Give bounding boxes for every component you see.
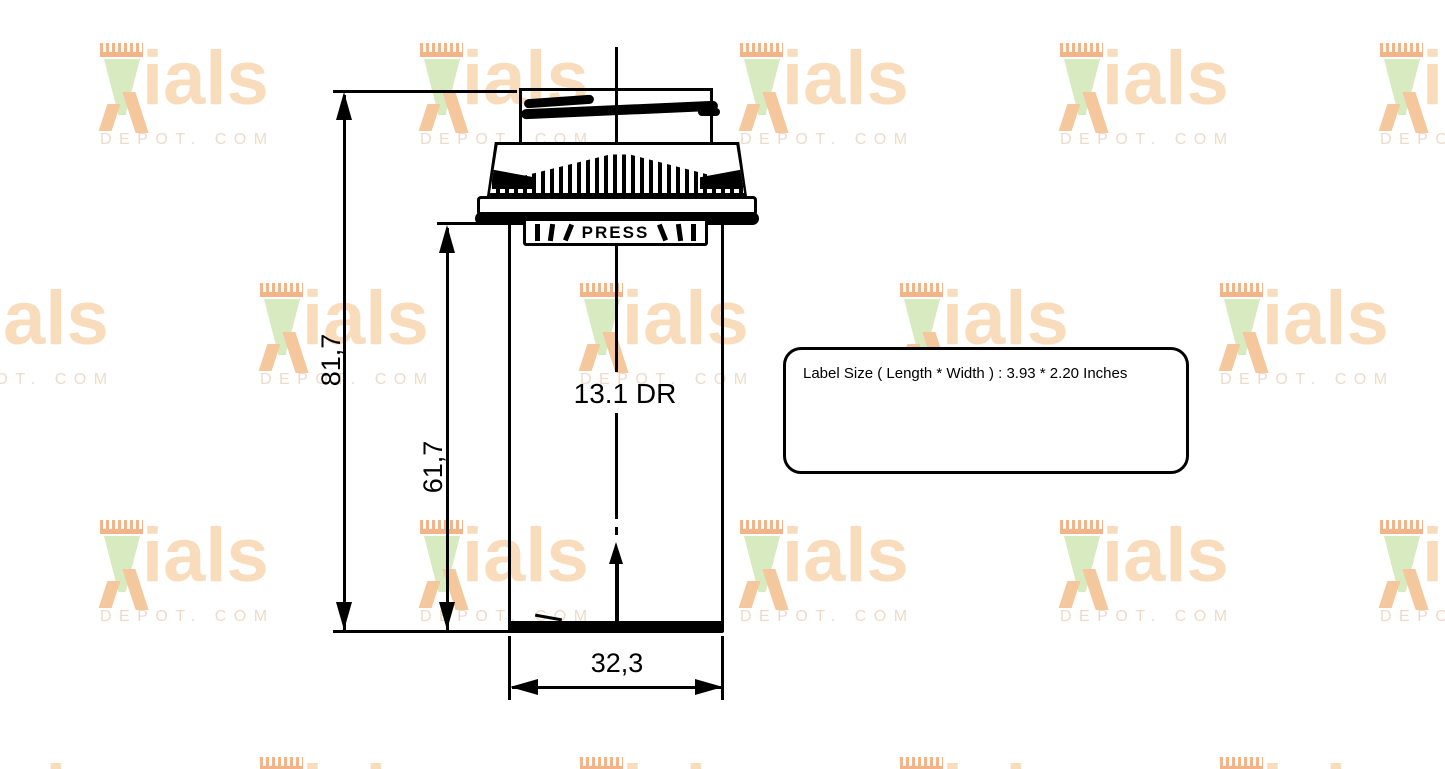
watermark-domain-text: DEPOT. COM bbox=[100, 131, 275, 149]
watermark-logo: ialsDEPOT. COM bbox=[580, 757, 770, 769]
brush-icon-base bbox=[100, 52, 143, 57]
brush-icon-base bbox=[420, 529, 463, 534]
brush-icon bbox=[580, 757, 623, 766]
watermark-brand-text: ials bbox=[782, 506, 909, 606]
brush-icon bbox=[420, 43, 463, 52]
watermark-logo: ialsDEPOT. COM bbox=[1380, 43, 1445, 155]
label-size-box: Label Size ( Length * Width ) : 3.93 * 2… bbox=[783, 347, 1189, 474]
dim-height-ext-bottom bbox=[333, 630, 509, 633]
vee-stroke-left bbox=[419, 104, 441, 131]
watermark-logo: ialsDEPOT. COM bbox=[0, 283, 130, 395]
vee-stroke-left bbox=[1059, 581, 1081, 608]
watermark-brand-text: ials bbox=[0, 743, 109, 769]
watermark-domain-text: DEPOT. COM bbox=[1380, 131, 1445, 149]
cap-top bbox=[487, 142, 747, 196]
thread-line bbox=[698, 108, 720, 116]
watermark-logo: ialsDEPOT. COM bbox=[1380, 520, 1445, 632]
watermark-logo: ialsDEPOT. COM bbox=[260, 757, 450, 769]
watermark-brand-text: ials bbox=[782, 29, 909, 129]
dim-height-arrow-bottom bbox=[336, 602, 352, 630]
watermark-domain-text: DEPOT. COM bbox=[740, 608, 915, 626]
watermark-logo: ialsDEPOT. COM bbox=[0, 757, 130, 769]
watermark-logo: ialsDEPOT. COM bbox=[100, 43, 290, 155]
watermark-logo: ialsDEPOT. COM bbox=[740, 43, 930, 155]
brush-icon bbox=[1060, 520, 1103, 529]
vee-stroke-left bbox=[739, 104, 761, 131]
brush-icon bbox=[260, 283, 303, 292]
watermark-brand-text: ials bbox=[1262, 269, 1389, 369]
watermark-logo: ialsDEPOT. COM bbox=[740, 520, 930, 632]
vee-stroke-left bbox=[1379, 581, 1401, 608]
brush-icon-base bbox=[1220, 292, 1263, 297]
watermark-logo: ialsDEPOT. COM bbox=[1060, 520, 1250, 632]
dim-height-arrow-top bbox=[336, 92, 352, 120]
vee-stroke-left bbox=[259, 344, 281, 371]
watermark-brand-text: ials bbox=[1262, 743, 1389, 769]
watermark-brand-text: ials bbox=[462, 506, 589, 606]
watermark-logo: ialsDEPOT. COM bbox=[1060, 43, 1250, 155]
watermark-domain-text: DEPOT. COM bbox=[1220, 371, 1395, 389]
brush-icon bbox=[900, 283, 943, 292]
brush-icon bbox=[100, 520, 143, 529]
vee-stroke-left bbox=[99, 104, 121, 131]
vee-stroke-left bbox=[99, 581, 121, 608]
brush-icon-base bbox=[260, 292, 303, 297]
brush-icon bbox=[1220, 283, 1263, 292]
watermark-brand-text: ials bbox=[1422, 506, 1445, 606]
vial-centerline-dash bbox=[615, 527, 618, 535]
vial-centerline-middle bbox=[615, 413, 618, 519]
dim-label-width: 32,3 bbox=[567, 648, 667, 679]
brush-icon bbox=[1060, 43, 1103, 52]
dim-width-arrow-right bbox=[695, 679, 723, 695]
hatch-mark bbox=[691, 224, 696, 241]
brush-icon bbox=[740, 43, 783, 52]
watermark-logo: ialsDEPOT. COM bbox=[900, 757, 1090, 769]
brush-icon-base bbox=[1060, 529, 1103, 534]
watermark-logo: ialsDEPOT. COM bbox=[1220, 757, 1410, 769]
watermark-brand-text: ials bbox=[622, 743, 749, 769]
watermark-domain-text: DEPOT. COM bbox=[1060, 131, 1235, 149]
brush-icon-base bbox=[1380, 52, 1423, 57]
body-right-line bbox=[721, 225, 724, 632]
hatch-mark bbox=[535, 224, 540, 241]
watermark-brand-text: ials bbox=[622, 269, 749, 369]
dim-body-arrow-bottom bbox=[439, 602, 455, 630]
diagram-canvas: ialsDEPOT. COMialsDEPOT. COMialsDEPOT. C… bbox=[0, 0, 1445, 769]
press-ring: PRESS bbox=[523, 218, 708, 246]
body-left-line bbox=[508, 225, 511, 632]
watermark-domain-text: DEPOT. COM bbox=[260, 371, 435, 389]
brush-icon bbox=[100, 43, 143, 52]
brush-icon bbox=[1380, 520, 1423, 529]
neck-right-line bbox=[710, 88, 713, 145]
dim-width-arrow-left bbox=[510, 679, 538, 695]
label-size-text: Label Size ( Length * Width ) : 3.93 * 2… bbox=[803, 365, 1127, 382]
watermark-brand-text: ials bbox=[1102, 29, 1229, 129]
watermark-domain-text: DEPOT. COM bbox=[100, 608, 275, 626]
watermark-domain-text: DEPOT. COM bbox=[1060, 608, 1235, 626]
brush-icon-base bbox=[1380, 529, 1423, 534]
vee-stroke-left bbox=[1059, 104, 1081, 131]
brush-icon bbox=[260, 757, 303, 766]
watermark-domain-text: DEPOT. COM bbox=[740, 131, 915, 149]
watermark-brand-text: ials bbox=[942, 743, 1069, 769]
watermark-logo: ialsDEPOT. COM bbox=[1220, 283, 1410, 395]
brush-icon-base bbox=[740, 52, 783, 57]
brush-icon-base bbox=[100, 529, 143, 534]
dim-body-arrow-top bbox=[439, 225, 455, 253]
vee-stroke-left bbox=[1379, 104, 1401, 131]
vee-stroke-left bbox=[739, 581, 761, 608]
watermark-logo: ialsDEPOT. COM bbox=[260, 283, 450, 395]
neck-top-line bbox=[519, 88, 713, 91]
watermark-logo: ialsDEPOT. COM bbox=[100, 520, 290, 632]
brush-icon bbox=[900, 757, 943, 766]
dim-label-overall-height: 81,7 bbox=[316, 320, 346, 400]
brush-icon bbox=[740, 520, 783, 529]
capacity-label: 13.1 DR bbox=[560, 378, 690, 410]
cap-top-face bbox=[490, 145, 744, 193]
brush-icon bbox=[1220, 757, 1263, 766]
brush-icon-base bbox=[1060, 52, 1103, 57]
watermark-brand-text: ials bbox=[302, 743, 429, 769]
watermark-brand-text: ials bbox=[142, 29, 269, 129]
brush-icon-base bbox=[420, 52, 463, 57]
watermark-domain-text: DEPOT. COM bbox=[0, 371, 115, 389]
watermark-brand-text: ials bbox=[1422, 29, 1445, 129]
vee-stroke-left bbox=[419, 581, 441, 608]
watermark-brand-text: ials bbox=[1102, 506, 1229, 606]
brush-icon-base bbox=[900, 292, 943, 297]
brush-icon bbox=[420, 520, 463, 529]
watermark-brand-text: ials bbox=[142, 506, 269, 606]
dim-height-ext-top bbox=[333, 90, 517, 93]
dim-label-body-height: 61,7 bbox=[418, 427, 448, 507]
centerline-up-arrow bbox=[609, 542, 623, 564]
vee-stroke-left bbox=[1219, 344, 1241, 371]
brush-icon bbox=[1380, 43, 1423, 52]
vee-stroke-left bbox=[579, 344, 601, 371]
watermark-brand-text: ials bbox=[0, 269, 109, 369]
watermark-domain-text: DEPOT. COM bbox=[1380, 608, 1445, 626]
dim-width-line bbox=[512, 686, 722, 689]
body-bottom-base bbox=[508, 621, 724, 633]
brush-icon-base bbox=[740, 529, 783, 534]
